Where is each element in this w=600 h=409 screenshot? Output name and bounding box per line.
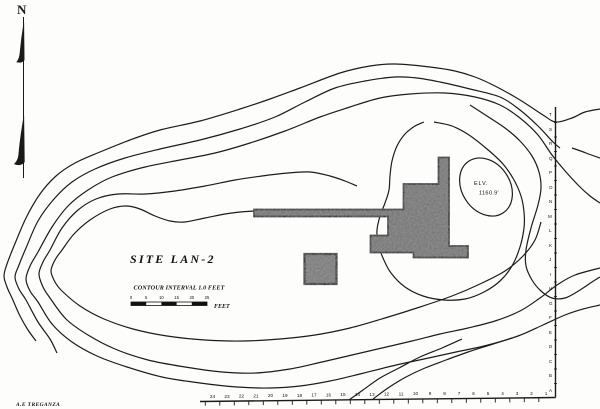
svg-text:1160.9': 1160.9' <box>479 191 499 197</box>
svg-text:1: 1 <box>545 391 548 396</box>
svg-text:21: 21 <box>253 393 259 398</box>
svg-text:8: 8 <box>443 391 446 396</box>
svg-text:K: K <box>549 243 552 248</box>
svg-text:13: 13 <box>369 392 375 397</box>
svg-text:6: 6 <box>472 391 475 396</box>
svg-text:19: 19 <box>282 393 288 398</box>
svg-text:7: 7 <box>458 391 461 396</box>
svg-text:Q: Q <box>549 156 553 161</box>
svg-text:15: 15 <box>340 392 346 397</box>
svg-text:16: 16 <box>326 392 332 397</box>
svg-text:CONTOUR INTERVAL 1.0 FEET: CONTOUR INTERVAL 1.0 FEET <box>134 285 225 292</box>
svg-text:11: 11 <box>399 391 404 396</box>
svg-text:H: H <box>549 286 552 291</box>
svg-text:F: F <box>549 315 552 320</box>
svg-text:G: G <box>549 301 553 306</box>
svg-text:N: N <box>549 199 552 204</box>
svg-text:25: 25 <box>205 295 210 300</box>
svg-text:B: B <box>549 373 552 378</box>
svg-text:M: M <box>548 214 552 219</box>
svg-text:4: 4 <box>501 391 504 396</box>
svg-text:T: T <box>549 112 552 117</box>
svg-text:A: A <box>549 388 552 393</box>
svg-text:5: 5 <box>487 391 490 396</box>
svg-text:15: 15 <box>174 295 179 300</box>
svg-text:A.E TREGANZA: A.E TREGANZA <box>15 402 60 408</box>
svg-text:12: 12 <box>384 392 390 397</box>
svg-text:23: 23 <box>224 394 230 399</box>
svg-text:18: 18 <box>297 393 303 398</box>
svg-text:ELV.: ELV. <box>474 181 488 187</box>
svg-text:SITE LAN-2: SITE LAN-2 <box>130 252 216 266</box>
svg-text:22: 22 <box>239 394 245 399</box>
svg-text:17: 17 <box>311 393 317 398</box>
svg-text:I: I <box>550 272 551 277</box>
svg-text:24: 24 <box>210 394 216 399</box>
svg-text:14: 14 <box>355 392 361 397</box>
svg-text:9: 9 <box>429 391 432 396</box>
svg-text:20: 20 <box>268 393 274 398</box>
svg-text:20: 20 <box>189 295 194 300</box>
svg-text:S: S <box>549 127 552 132</box>
svg-text:2: 2 <box>530 391 533 396</box>
svg-text:N: N <box>17 2 27 17</box>
svg-text:10: 10 <box>159 295 164 300</box>
svg-text:FEET: FEET <box>214 304 230 310</box>
svg-text:10: 10 <box>413 391 419 396</box>
svg-text:O: O <box>549 185 553 190</box>
svg-text:J: J <box>549 257 551 262</box>
svg-text:3: 3 <box>516 391 519 396</box>
svg-text:P: P <box>549 170 552 175</box>
svg-text:E: E <box>549 330 552 335</box>
